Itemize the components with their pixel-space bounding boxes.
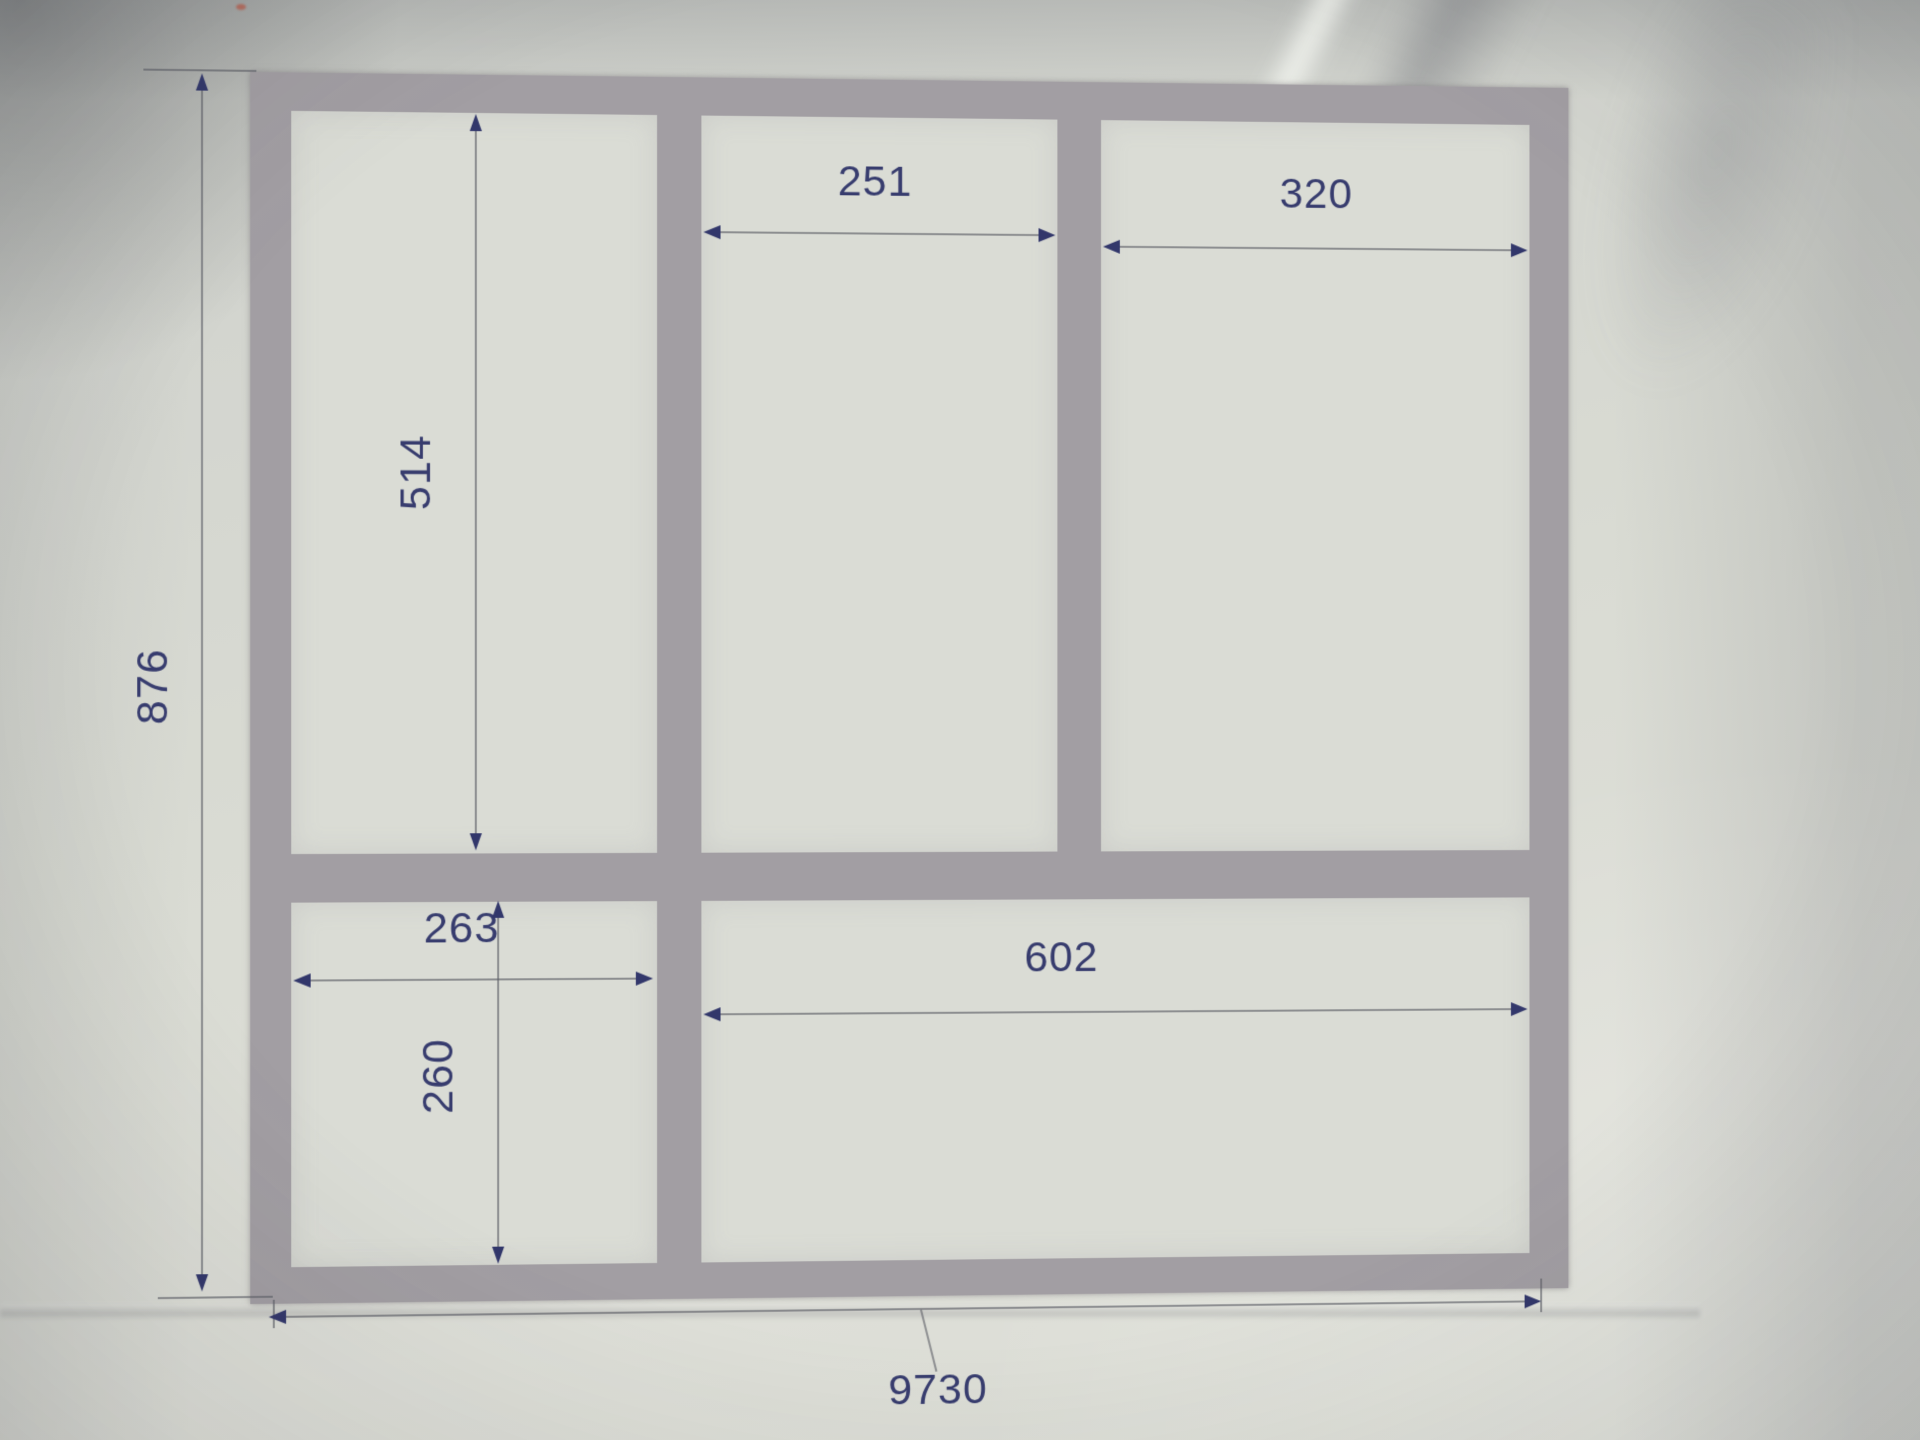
arrowhead-left-icon	[703, 1007, 720, 1021]
drawing-layer: 876 514 263 260 251	[0, 0, 1899, 1440]
dim-label: 263	[375, 904, 548, 954]
dim-label: 514	[391, 386, 441, 558]
leader-line	[920, 1309, 937, 1371]
arrowhead-left-icon	[269, 1310, 286, 1324]
arrowhead-right-icon	[1039, 228, 1056, 242]
arrowhead-up-icon	[196, 73, 208, 90]
dim-upper-left-height: 514	[0, 0, 1899, 13]
dim-upper-middle-width: 251	[0, 0, 1899, 13]
arrowhead-right-icon	[636, 971, 653, 985]
arrowhead-right-icon	[1511, 1002, 1528, 1016]
dimension-line	[475, 121, 477, 845]
dim-label: 9730	[853, 1365, 1023, 1416]
dimension-line	[497, 908, 499, 1259]
arrowhead-down-icon	[470, 833, 482, 850]
arrowhead-down-icon	[196, 1274, 208, 1291]
extension-line	[143, 69, 256, 72]
arrowhead-left-icon	[293, 973, 310, 987]
dim-lower-left-width: 263	[0, 0, 1899, 13]
frame-cell-upper-right	[1101, 120, 1529, 851]
dimension-line	[201, 85, 203, 1286]
arrowhead-left-icon	[703, 225, 720, 239]
arrowhead-right-icon	[1511, 243, 1528, 257]
dimension-line	[277, 1300, 1539, 1318]
dim-lower-left-height: 260	[0, 0, 1899, 13]
dim-label: 260	[413, 990, 463, 1162]
arrowhead-up-icon	[470, 114, 482, 131]
dim-lower-right-width: 602	[0, 0, 1899, 13]
arrowhead-right-icon	[1525, 1294, 1542, 1308]
dim-overall-height: 876	[0, 0, 1899, 13]
dim-upper-right-width: 320	[0, 0, 1899, 13]
photo-of-technical-drawing: 876 514 263 260 251	[0, 0, 1920, 1440]
dim-label: 876	[127, 600, 177, 773]
dim-label: 602	[977, 933, 1146, 983]
frame-cell-upper-middle	[701, 116, 1057, 853]
dim-label: 251	[790, 157, 960, 208]
arrowhead-up-icon	[492, 901, 504, 918]
arrowhead-left-icon	[1103, 240, 1120, 254]
arrowhead-down-icon	[492, 1247, 504, 1264]
dim-overall-width: 9730	[0, 0, 1899, 13]
dim-label: 320	[1233, 169, 1400, 219]
frame-cell-lower-left	[291, 901, 657, 1267]
